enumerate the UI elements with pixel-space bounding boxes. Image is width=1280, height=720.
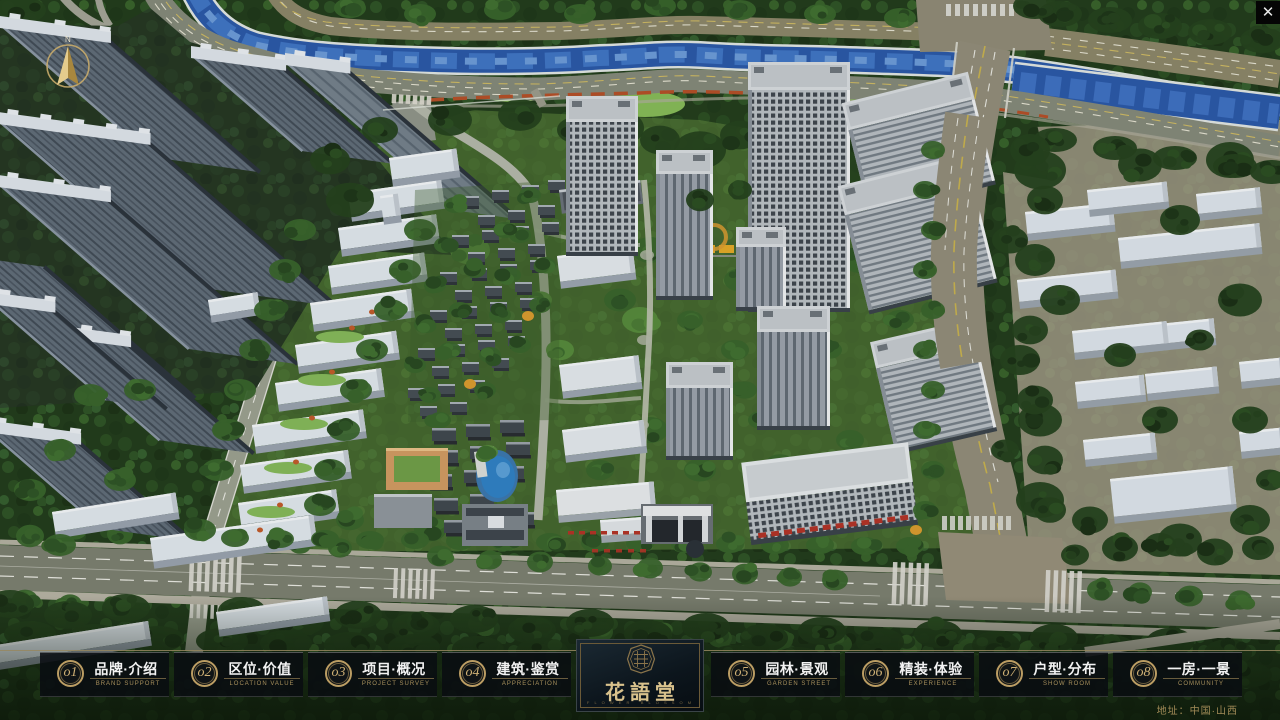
svg-text:N: N bbox=[65, 35, 71, 44]
